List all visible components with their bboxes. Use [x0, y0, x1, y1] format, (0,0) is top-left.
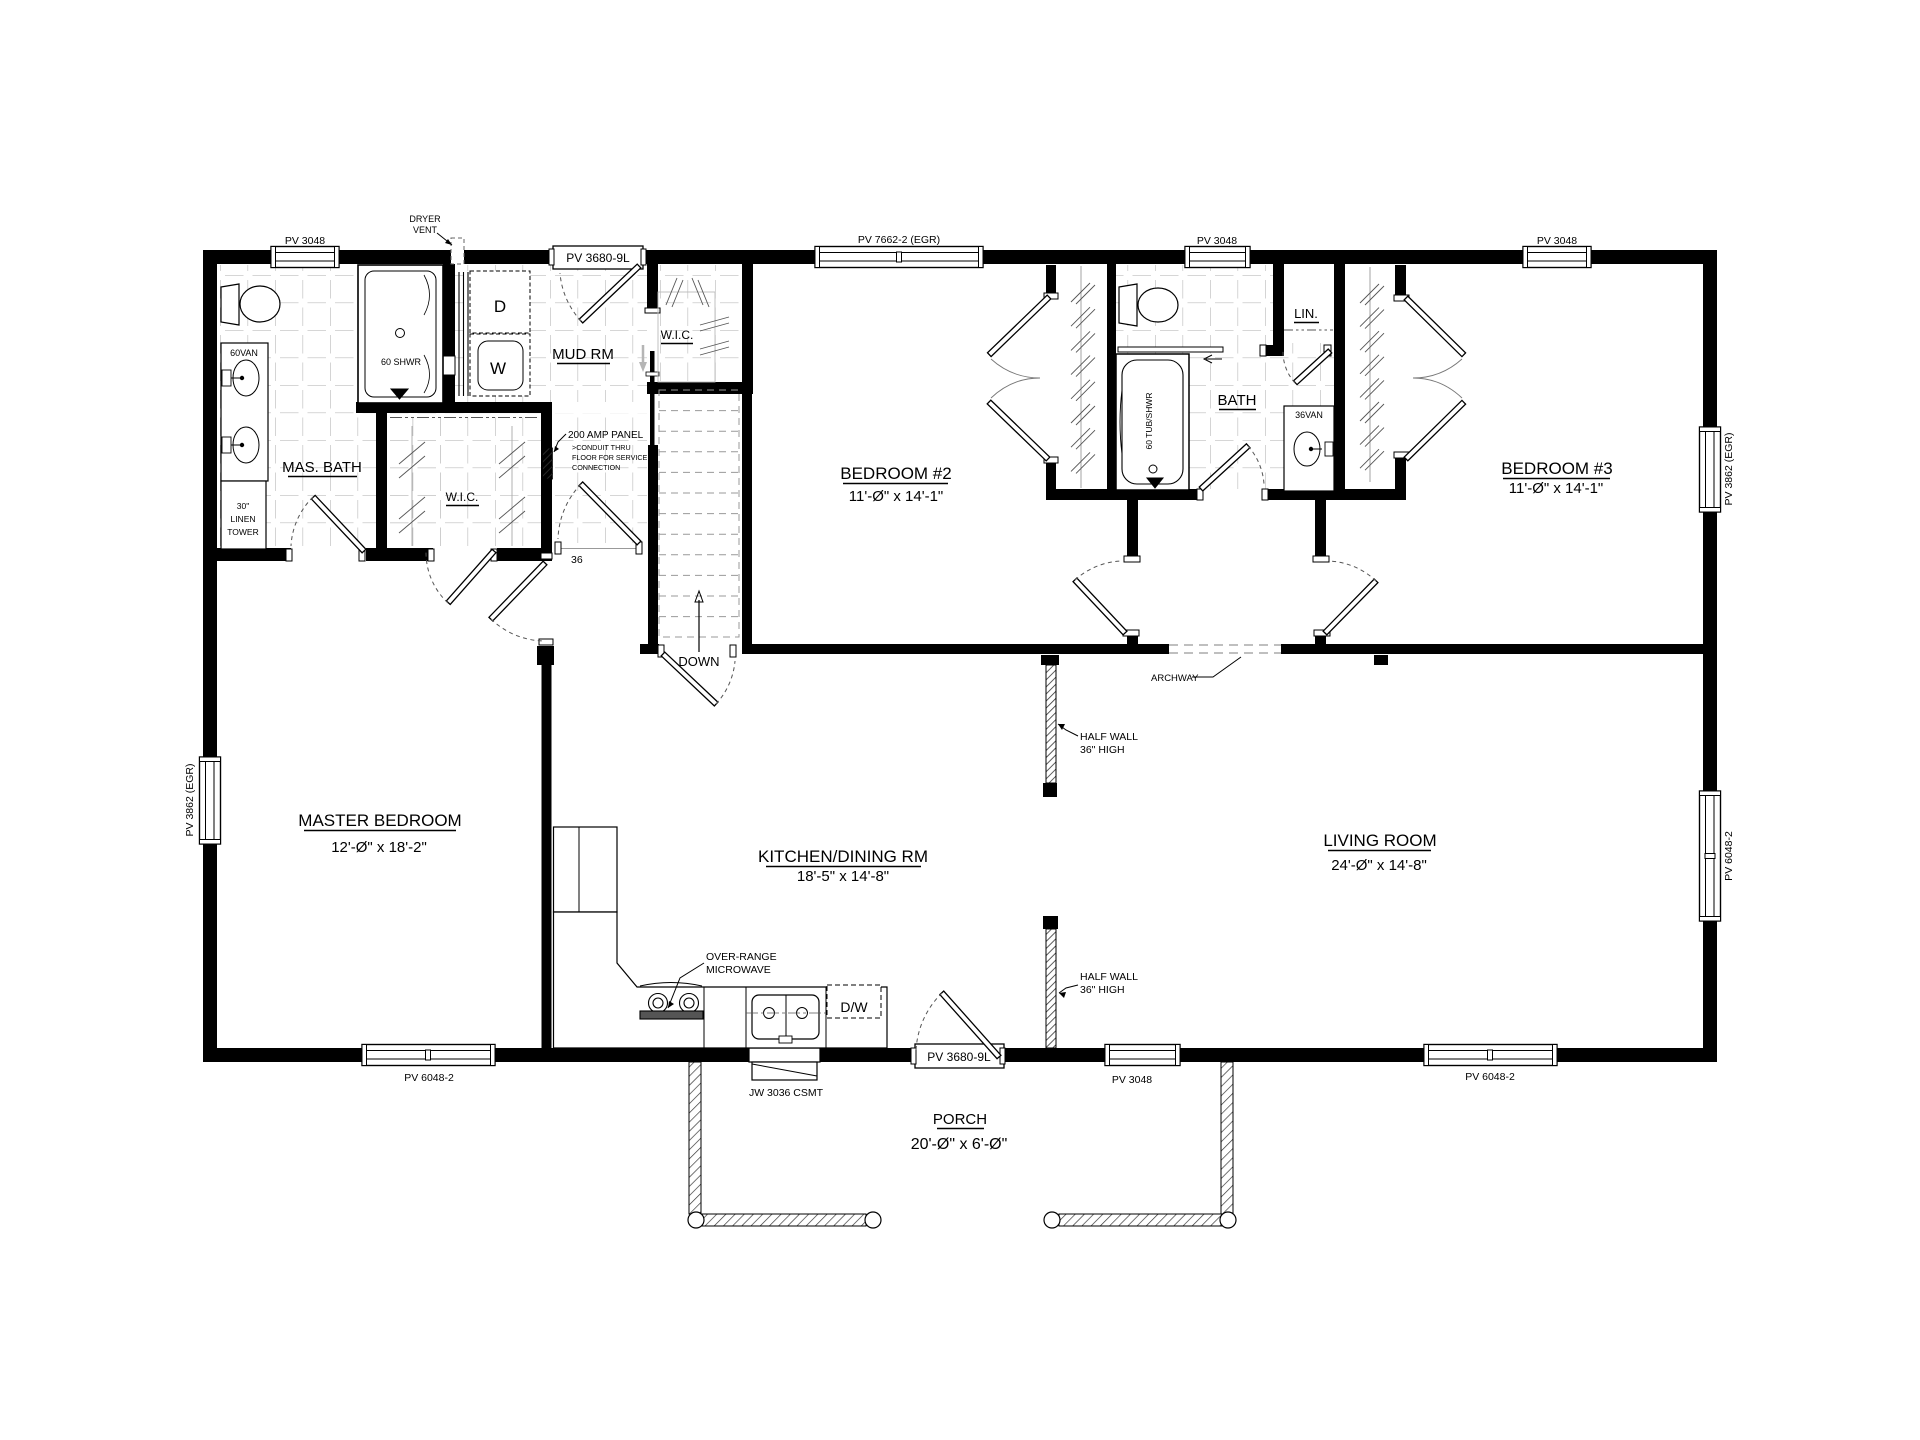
svg-text:KITCHEN/DINING RM: KITCHEN/DINING RM [758, 847, 928, 866]
svg-text:PV 3048: PV 3048 [1197, 235, 1237, 247]
svg-text:DOWN: DOWN [678, 654, 719, 669]
svg-text:VENT: VENT [413, 225, 438, 235]
svg-text:D/W: D/W [840, 999, 868, 1015]
svg-text:PV 3048: PV 3048 [1112, 1074, 1152, 1086]
svg-text:PV 3680-9L: PV 3680-9L [927, 1050, 991, 1064]
svg-text:ARCHWAY: ARCHWAY [1151, 673, 1199, 684]
svg-text:20'-Ø" x 6'-Ø": 20'-Ø" x 6'-Ø" [911, 1136, 1008, 1153]
svg-text:>CONDUIT THRU: >CONDUIT THRU [572, 443, 631, 452]
svg-text:OVER-RANGE: OVER-RANGE [706, 951, 777, 963]
svg-text:11'-Ø" x 14'-1": 11'-Ø" x 14'-1" [1509, 480, 1603, 497]
svg-text:PV 3680-9L: PV 3680-9L [566, 251, 630, 265]
svg-text:JW 3036 CSMT: JW 3036 CSMT [749, 1087, 824, 1099]
svg-text:18'-5" x 14'-8": 18'-5" x 14'-8" [797, 868, 889, 885]
svg-text:DRYER: DRYER [409, 214, 441, 224]
svg-text:MICROWAVE: MICROWAVE [706, 964, 771, 976]
svg-text:TOWER: TOWER [227, 527, 258, 537]
svg-text:W.I.C.: W.I.C. [446, 490, 479, 504]
svg-text:BEDROOM #2: BEDROOM #2 [840, 464, 951, 483]
svg-text:LIN.: LIN. [1294, 306, 1318, 321]
svg-text:PV 7662-2 (EGR): PV 7662-2 (EGR) [858, 234, 940, 246]
svg-text:11'-Ø" x 14'-1": 11'-Ø" x 14'-1" [849, 488, 943, 505]
svg-text:CONNECTION: CONNECTION [572, 463, 620, 472]
svg-text:36VAN: 36VAN [1295, 410, 1323, 420]
svg-text:PV 6048-2: PV 6048-2 [1723, 831, 1735, 881]
svg-text:PV 6048-2: PV 6048-2 [1465, 1071, 1515, 1083]
svg-text:PORCH: PORCH [933, 1111, 987, 1128]
svg-text:BATH: BATH [1218, 392, 1257, 409]
svg-text:PV 3048: PV 3048 [1537, 235, 1577, 247]
svg-text:MAS. BATH: MAS. BATH [282, 459, 362, 476]
svg-text:MUD RM: MUD RM [552, 346, 614, 363]
svg-text:PV 3862 (EGR): PV 3862 (EGR) [184, 764, 196, 837]
svg-text:36" HIGH: 36" HIGH [1080, 744, 1125, 756]
svg-text:60 SHWR: 60 SHWR [381, 357, 422, 367]
svg-text:60VAN: 60VAN [230, 348, 258, 358]
svg-text:HALF WALL: HALF WALL [1080, 731, 1138, 743]
svg-text:BEDROOM #3: BEDROOM #3 [1501, 459, 1612, 478]
svg-text:PV 6048-2: PV 6048-2 [404, 1072, 454, 1084]
svg-text:HALF WALL: HALF WALL [1080, 971, 1138, 983]
svg-text:PV 3048: PV 3048 [285, 235, 325, 247]
svg-text:MASTER BEDROOM: MASTER BEDROOM [298, 811, 461, 830]
svg-text:LIVING ROOM: LIVING ROOM [1323, 831, 1436, 850]
svg-text:60 TUB/SHWR: 60 TUB/SHWR [1144, 393, 1154, 450]
svg-text:W: W [490, 359, 506, 378]
svg-text:36" HIGH: 36" HIGH [1080, 984, 1125, 996]
svg-text:12'-Ø" x 18'-2": 12'-Ø" x 18'-2" [331, 839, 427, 856]
svg-text:FLOOR FOR SERVICE: FLOOR FOR SERVICE [572, 453, 648, 462]
svg-text:LINEN: LINEN [230, 514, 255, 524]
svg-text:W.I.C.: W.I.C. [661, 328, 694, 342]
svg-text:36: 36 [571, 554, 583, 566]
svg-text:PV 3862 (EGR): PV 3862 (EGR) [1723, 433, 1735, 506]
svg-text:24'-Ø" x 14'-8": 24'-Ø" x 14'-8" [1331, 857, 1427, 874]
svg-text:D: D [494, 297, 506, 316]
svg-text:30": 30" [237, 501, 249, 511]
svg-text:200 AMP PANEL: 200 AMP PANEL [568, 430, 644, 441]
